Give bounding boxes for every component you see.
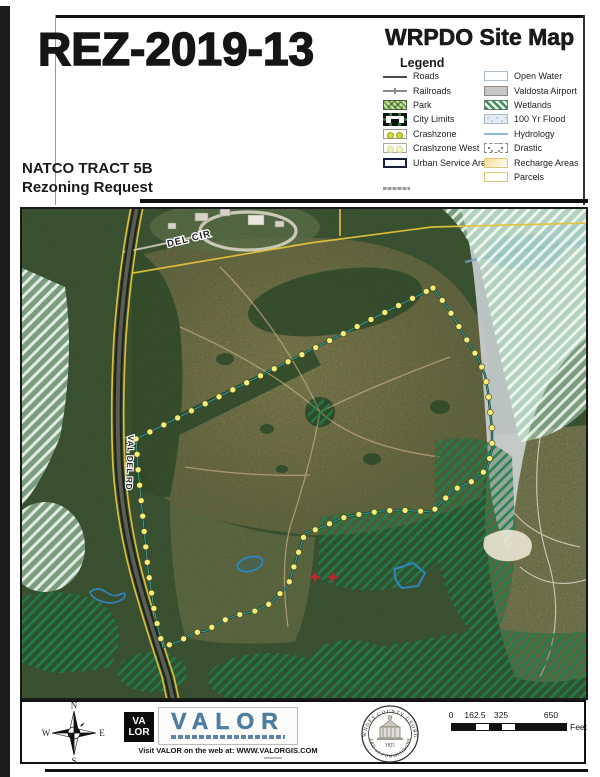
boundary-vertex-dot [432, 506, 438, 512]
footer-box: N E S W VA LOR VALOR Visit VALOR on the … [20, 700, 586, 764]
boundary-vertex-dot [141, 529, 147, 535]
compass-w: W [42, 728, 51, 738]
valor-mark-line1: VA [124, 716, 154, 727]
tract-name: NATCO TRACT 5B [22, 160, 153, 177]
boundary-vertex-dot [277, 591, 283, 597]
boundary-vertex-dot [137, 482, 143, 488]
boundary-vertex-dot [410, 295, 416, 301]
legend-item: Park [383, 98, 491, 112]
boundary-vertex-dot [166, 642, 172, 648]
legend-item: Roads [383, 69, 491, 83]
valor-logo-box: VALOR [158, 707, 298, 745]
boundary-vertex-dot [158, 636, 164, 642]
boundary-vertex-dot [286, 579, 292, 585]
valor-logo-mark: VA LOR [124, 712, 154, 742]
boundary-vertex-dot [489, 425, 495, 431]
legend-label: Railroads [413, 86, 451, 96]
legend-item: Crashzone [383, 127, 491, 141]
scale-bar-segments [451, 723, 567, 731]
legend-label: Drastic [514, 143, 542, 153]
legend-label: Park [413, 100, 432, 110]
boundary-vertex-dot [188, 408, 194, 414]
legend-item: 100 Yr Flood [484, 112, 579, 126]
legend-item: City Limits [383, 112, 491, 126]
boundary-vertex-dot [291, 564, 297, 570]
boundary-vertex-dot [340, 331, 346, 337]
boundary-vertex-dot [271, 366, 277, 372]
boundary-vertex-dot [443, 495, 449, 501]
boundary-vertex-dot [252, 608, 258, 614]
boundary-vertex-dot [312, 527, 318, 533]
boundary-vertex-dot [151, 605, 157, 611]
scale-segment [515, 724, 566, 730]
map-title: WRPDO Site Map [385, 24, 574, 51]
boundary-vertex-dot [327, 521, 333, 527]
page-frame-right [583, 15, 585, 205]
valor-tagline-microtext [171, 735, 285, 739]
valor-copyright-microtext [264, 757, 282, 759]
scale-unit: Feet [570, 722, 587, 732]
legend-column-right: Open WaterValdosta AirportWetlands100 Yr… [484, 69, 579, 184]
recharge-swatch [484, 158, 508, 168]
scale-segment [476, 724, 489, 730]
seal-year: 1825 [385, 744, 395, 749]
citylimits-swatch [383, 113, 407, 126]
boundary-vertex-dot [140, 513, 146, 519]
boundary-vertex-dot [371, 509, 377, 515]
crashzone-swatch [383, 129, 407, 139]
boundary-vertex-dot [222, 617, 228, 623]
boundary-vertex-dot [402, 507, 408, 513]
boundary-vertex-dot [479, 364, 485, 370]
boundary-vertex-dot [181, 636, 187, 642]
boundary-vertex-dot [468, 479, 474, 485]
scale-segment [489, 724, 502, 730]
boundary-vertex-dot [430, 285, 436, 291]
legend-column-left: RoadsRailroadsParkCity LimitsCrashzoneCr… [383, 69, 491, 170]
boundary-vertex-dot [418, 508, 424, 514]
roads-swatch [383, 76, 407, 78]
boundary-vertex-dot [341, 515, 347, 521]
map-canvas: DEL CIR VAL DEL RD [20, 207, 588, 700]
legend-label: Recharge Areas [514, 158, 579, 168]
legend-item: Drastic [484, 141, 579, 155]
aerial-site-map: DEL CIR VAL DEL RD [20, 207, 588, 700]
map-top-rule [140, 199, 588, 203]
boundary-vertex-dot [266, 601, 272, 607]
drastic-swatch [484, 143, 508, 153]
legend-item: Open Water [484, 69, 579, 83]
compass-e: E [99, 728, 105, 738]
legend-label: Wetlands [514, 100, 551, 110]
boundary-vertex-dot [216, 394, 222, 400]
scale-segment [452, 724, 476, 730]
boundary-vertex-dot [327, 338, 333, 344]
boundary-vertex-dot [154, 621, 160, 627]
request-type: Rezoning Request [22, 179, 153, 196]
boundary-vertex-dot [448, 310, 454, 316]
legend-label: Crashzone [413, 129, 457, 139]
openwater-swatch [484, 71, 508, 81]
boundary-vertex-dot [301, 534, 307, 540]
boundary-vertex-dot [487, 409, 493, 415]
compass-rose: N E S W [40, 700, 108, 766]
county-seal: LOWNDES COUNTY GEORGIA BOARD of COMMISSI… [360, 704, 420, 764]
boundary-vertex-dot [487, 456, 493, 462]
compass-n: N [71, 701, 78, 711]
park-swatch [383, 100, 407, 110]
scale-tick: 650 [544, 710, 558, 720]
boundary-vertex-dot [237, 612, 243, 618]
boundary-vertex-dot [147, 429, 153, 435]
boundary-vertex-dot [382, 310, 388, 316]
boundary-vertex-dot [138, 498, 144, 504]
legend-label: Crashzone West [413, 143, 479, 153]
scale-tick: 325 [494, 710, 508, 720]
boundary-vertex-dot [296, 549, 302, 555]
legend-label: Parcels [514, 172, 544, 182]
valor-wordmark: VALOR [159, 708, 297, 734]
boundary-vertex-dot [285, 359, 291, 365]
legend-label: Roads [413, 71, 439, 81]
boundary-vertex-dot [230, 387, 236, 393]
boundary-vertex-dot [387, 508, 393, 514]
boundary-vertex-dot [486, 394, 492, 400]
scale-tick: 0 [449, 710, 454, 720]
boundary-vertex-dot [175, 415, 181, 421]
legend-item: Urban Service Area [383, 155, 491, 169]
scale-bar: 0162.5325650 Feet [451, 710, 600, 750]
boundary-vertex-dot [423, 288, 429, 294]
boundary-vertex-dot [464, 337, 470, 343]
legend-item: Recharge Areas [484, 155, 579, 169]
boundary-vertex-dot [161, 422, 167, 428]
scan-edge-bar [0, 6, 10, 777]
boundary-vertex-dot [456, 324, 462, 330]
valor-website-line: Visit VALOR on the web at: WWW.VALORGIS.… [118, 746, 338, 755]
scale-segment [502, 724, 515, 730]
boundary-vertex-dot [439, 297, 445, 303]
boundary-vertex-dot [146, 575, 152, 581]
legend-item: Crashzone West [383, 141, 491, 155]
boundary-vertex-dot [368, 317, 374, 323]
legend-item: Hydrology [484, 127, 579, 141]
legend-item: Wetlands [484, 98, 579, 112]
boundary-vertex-dot [483, 379, 489, 385]
boundary-vertex-dot [454, 485, 460, 491]
val-del-rd-label: VAL DEL RD [124, 435, 136, 490]
legend-item: Valdosta Airport [484, 83, 579, 97]
legend-label: Open Water [514, 71, 562, 81]
legend-label: City Limits [413, 114, 455, 124]
boundary-vertex-dot [144, 559, 150, 565]
boundary-vertex-dot [143, 544, 149, 550]
boundary-vertex-dot [149, 590, 155, 596]
boundary-vertex-dot [472, 350, 478, 356]
legend-label: Valdosta Airport [514, 86, 577, 96]
railroads-swatch [383, 90, 407, 92]
page-bottom-rule [45, 769, 588, 772]
tiny-credit-text [383, 187, 410, 190]
case-number-title: REZ-2019-13 [38, 22, 314, 76]
legend-title: Legend [400, 56, 444, 70]
hydrology-swatch [484, 133, 508, 135]
boundary-vertex-dot [480, 469, 486, 475]
parcels-swatch [484, 172, 508, 182]
legend-item: Parcels [484, 170, 579, 184]
usa-swatch [383, 158, 407, 168]
airport-swatch [484, 86, 508, 96]
legend-label: Urban Service Area [413, 158, 491, 168]
scanned-site-map-page: REZ-2019-13 WRPDO Site Map Legend RoadsR… [0, 0, 600, 777]
valor-mark-line2: LOR [124, 727, 154, 738]
boundary-vertex-dot [396, 303, 402, 309]
boundary-vertex-dot [489, 440, 495, 446]
legend-label: Hydrology [514, 129, 555, 139]
legend-label: 100 Yr Flood [514, 114, 565, 124]
flood-swatch [484, 114, 508, 124]
scale-tick: 162.5 [464, 710, 485, 720]
wetlands-swatch [484, 100, 508, 110]
boundary-vertex-dot [202, 401, 208, 407]
boundary-vertex-dot [354, 324, 360, 330]
boundary-vertex-dot [299, 352, 305, 358]
boundary-vertex-dot [209, 624, 215, 630]
page-frame-top [55, 15, 584, 18]
boundary-vertex-dot [258, 373, 264, 379]
legend-item: Railroads [383, 83, 491, 97]
boundary-vertex-dot [135, 467, 141, 473]
boundary-vertex-dot [356, 511, 362, 517]
boundary-vertex-dot [313, 345, 319, 351]
crashzonewest-swatch [383, 143, 407, 153]
boundary-vertex-dot [194, 629, 200, 635]
compass-s: S [71, 756, 76, 766]
boundary-vertex-dot [244, 380, 250, 386]
